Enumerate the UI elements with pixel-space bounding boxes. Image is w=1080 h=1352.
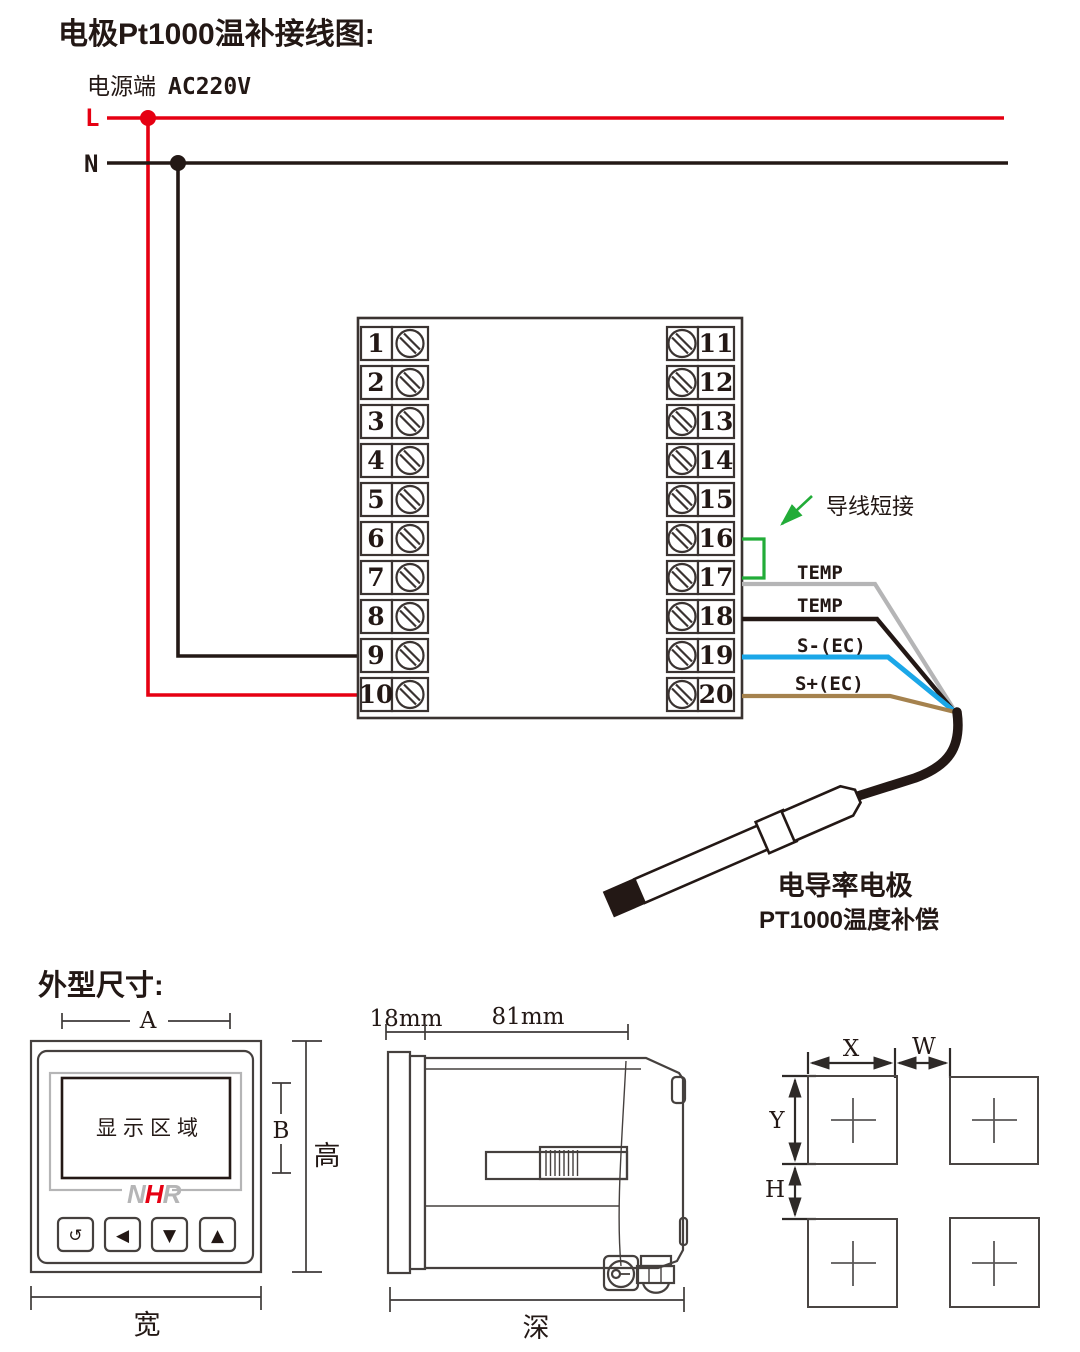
terminal-block: 1 2 3 4 5 <box>358 318 742 718</box>
screw-icon <box>669 642 696 669</box>
bezel-depth-label: 18mm <box>370 1006 443 1032</box>
jumper-wire <box>742 539 764 578</box>
logo-letter-r: R <box>163 1179 182 1209</box>
terminal-row: 5 <box>361 483 428 516</box>
screw-icon <box>669 486 696 513</box>
n-wire-to-terminal-9 <box>178 163 360 656</box>
jumper-label: 导线短接 <box>826 494 914 519</box>
screw-icon <box>669 564 696 591</box>
dim-b-label: B <box>273 1118 290 1144</box>
screw-icon <box>397 486 424 513</box>
left-arrow-icon: ◀ <box>116 1226 130 1246</box>
probe: 电导率电极 PT1000温度补偿 <box>602 712 958 934</box>
terminal-row: 14 <box>667 444 734 477</box>
side-body-outline <box>425 1058 683 1268</box>
dimensions-section: 外型尺寸: A 显示区域 NHR ↺ ◀ ▼ <box>31 969 1039 1344</box>
line-l-label: L <box>85 104 99 132</box>
terminal-row: 20 <box>667 678 734 711</box>
terminal-row: 8 <box>361 600 428 633</box>
terminal-row: 15 <box>667 483 734 516</box>
terminal-row: 19 <box>667 639 734 672</box>
terminal-number: 11 <box>699 329 734 358</box>
wire-label-temp1: TEMP <box>797 562 843 584</box>
side-bezel <box>388 1052 410 1273</box>
dim-y-label: Y <box>768 1108 785 1134</box>
terminal-number: 19 <box>699 641 734 670</box>
wiring-diagram: 电极Pt1000温补接线图: 电源端 AC220V L N 1 <box>58 18 1008 934</box>
terminal-number: 12 <box>699 368 734 397</box>
down-arrow-icon: ▼ <box>163 1226 177 1246</box>
terminal-row: 7 <box>361 561 428 594</box>
terminal-number: 6 <box>367 524 384 553</box>
power-voltage-label: AC220V <box>168 74 251 100</box>
cutout-hole <box>808 1076 897 1164</box>
screw-icon <box>397 525 424 552</box>
screw-icon <box>397 447 424 474</box>
screw-icon <box>397 330 424 357</box>
terminal-number: 10 <box>359 680 394 709</box>
power-terminal-label: 电源端 <box>87 73 156 99</box>
probe-cable <box>858 712 958 796</box>
body-depth-label: 81mm <box>492 1004 565 1030</box>
s-plus-wire-brown <box>742 696 955 712</box>
wire-label-s-minus: S-(EC) <box>797 635 866 657</box>
screw-icon <box>669 603 696 630</box>
probe-subtitle: PT1000温度补偿 <box>759 906 939 934</box>
terminal-number: 14 <box>699 446 734 475</box>
jumper-arrow-icon <box>782 496 812 524</box>
depth-dim-label: 深 <box>523 1313 550 1344</box>
terminal-row: 1 <box>361 327 428 360</box>
terminal-row: 17 <box>667 561 734 594</box>
brand-logo: NHR <box>127 1179 182 1209</box>
dim-h-label: H <box>765 1177 785 1203</box>
side-bezel-inner <box>410 1056 425 1269</box>
height-dim-label: 高 <box>314 1141 341 1172</box>
return-icon: ↺ <box>68 1226 82 1246</box>
screw-icon <box>397 408 424 435</box>
cutout-hole <box>950 1218 1039 1307</box>
terminal-row: 2 <box>361 366 428 399</box>
terminal-number: 9 <box>367 641 384 670</box>
sensor-wires: TEMP TEMP S-(EC) S+(EC) <box>742 562 955 712</box>
screw-icon <box>669 330 696 357</box>
screw-icon <box>397 603 424 630</box>
wire-label-s-plus: S+(EC) <box>795 673 864 695</box>
dim-x-label: X <box>843 1036 860 1062</box>
terminal-number: 3 <box>367 407 384 436</box>
terminal-number: 1 <box>367 329 384 358</box>
terminal-row: 16 <box>667 522 734 555</box>
terminal-row: 12 <box>667 366 734 399</box>
terminal-row: 6 <box>361 522 428 555</box>
probe-upper-body <box>782 781 864 841</box>
screw-icon <box>669 369 696 396</box>
terminal-row: 3 <box>361 405 428 438</box>
terminal-number: 17 <box>699 563 734 592</box>
probe-shaft <box>634 824 771 903</box>
screw-icon <box>397 681 424 708</box>
screw-icon <box>669 525 696 552</box>
terminal-number: 16 <box>699 524 734 553</box>
terminal-number: 4 <box>367 446 384 475</box>
front-view: A 显示区域 NHR ↺ ◀ ▼ ▲ <box>31 1008 341 1341</box>
line-n-label: N <box>84 150 98 178</box>
display-area-label: 显示区域 <box>96 1116 204 1140</box>
side-view: 18mm 81mm <box>370 1004 687 1344</box>
screw-icon <box>397 369 424 396</box>
terminal-number: 15 <box>699 485 734 514</box>
width-dim-label: 宽 <box>134 1310 161 1341</box>
diagram-svg: 电极Pt1000温补接线图: 电源端 AC220V L N 1 <box>0 0 1080 1352</box>
terminal-row: 9 <box>361 639 428 672</box>
screw-icon <box>397 642 424 669</box>
terminal-number: 18 <box>699 602 734 631</box>
screw-icon <box>669 408 696 435</box>
up-arrow-icon: ▲ <box>211 1226 225 1246</box>
dim-w-label: W <box>912 1034 936 1060</box>
screw-icon <box>397 564 424 591</box>
terminal-number: 13 <box>699 407 734 436</box>
screw-icon <box>669 447 696 474</box>
terminal-number: 5 <box>367 485 384 514</box>
wiring-title: 电极Pt1000温补接线图: <box>58 18 375 51</box>
terminal-number: 20 <box>699 680 734 709</box>
dim-a-label: A <box>139 1008 157 1034</box>
wire-label-temp2: TEMP <box>797 595 843 617</box>
terminal-row: 4 <box>361 444 428 477</box>
terminal-row: 10 <box>359 678 428 711</box>
dimensions-heading: 外型尺寸: <box>38 969 164 1002</box>
terminal-number: 7 <box>367 563 384 592</box>
terminal-number: 2 <box>367 368 384 397</box>
terminal-row: 13 <box>667 405 734 438</box>
cutout-hole <box>808 1219 897 1307</box>
page: 电极Pt1000温补接线图: 电源端 AC220V L N 1 <box>0 0 1080 1352</box>
cutout-hole <box>950 1077 1038 1164</box>
panel-cutout: X W Y H <box>765 1034 1039 1307</box>
terminal-row: 11 <box>667 327 734 360</box>
screw-icon <box>669 681 696 708</box>
probe-title: 电导率电极 <box>778 870 913 901</box>
terminal-row: 18 <box>667 600 734 633</box>
terminal-number: 8 <box>367 602 384 631</box>
